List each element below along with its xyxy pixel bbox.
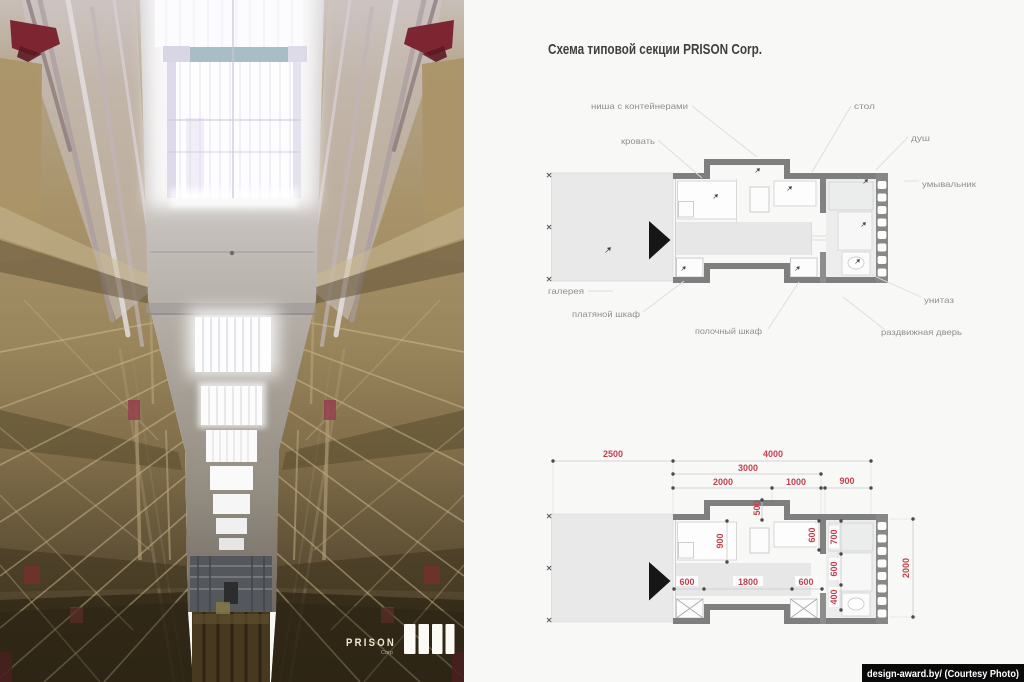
svg-text:Схема типовой секции PRISON Co: Схема типовой секции PRISON Corp. [548, 41, 762, 58]
svg-text:унитаз: унитаз [924, 295, 954, 305]
svg-text:900: 900 [839, 476, 854, 486]
svg-text:2000: 2000 [901, 558, 911, 578]
svg-text:платяной шкаф: платяной шкаф [572, 309, 640, 319]
svg-text:галерея: галерея [548, 286, 584, 296]
svg-text:2000: 2000 [713, 477, 733, 487]
svg-text:500: 500 [752, 500, 762, 515]
svg-text:600: 600 [829, 561, 839, 576]
svg-text:полочный шкаф: полочный шкаф [695, 326, 762, 336]
svg-text:1800: 1800 [738, 577, 758, 587]
svg-text:700: 700 [829, 529, 839, 544]
svg-text:400: 400 [829, 589, 839, 604]
svg-text:PRISON: PRISON [346, 637, 396, 649]
svg-text:ниша с контейнерами: ниша с контейнерами [591, 101, 688, 111]
svg-text:4000: 4000 [763, 449, 783, 459]
svg-text:1000: 1000 [786, 477, 806, 487]
svg-text:2500: 2500 [603, 449, 623, 459]
svg-text:умывальник: умывальник [922, 179, 976, 189]
svg-text:3000: 3000 [738, 463, 758, 473]
svg-text:раздвижная дверь: раздвижная дверь [881, 327, 963, 337]
svg-text:душ: душ [911, 133, 930, 143]
svg-text:design-award.by/ (Courtesy Pho: design-award.by/ (Courtesy Photo) [867, 668, 1019, 680]
svg-text:стол: стол [854, 101, 875, 111]
svg-text:600: 600 [798, 577, 813, 587]
svg-text:кровать: кровать [621, 136, 656, 146]
svg-text:600: 600 [807, 527, 817, 542]
svg-text:900: 900 [715, 533, 725, 548]
svg-text:Corp: Corp [381, 650, 393, 656]
svg-text:600: 600 [679, 577, 694, 587]
